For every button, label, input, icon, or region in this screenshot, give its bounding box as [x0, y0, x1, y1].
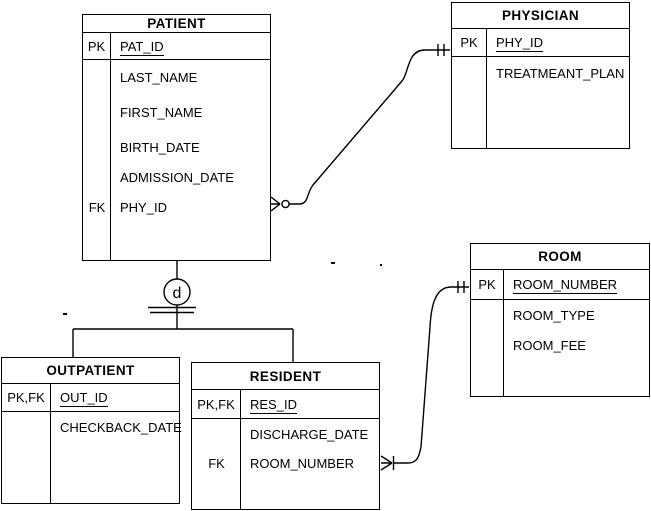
disjoint-label: d — [173, 285, 182, 302]
patient-key-column-divider — [110, 60, 111, 260]
outpatient-attr-checkback-date: CHECKBACK_DATE — [2, 418, 179, 436]
room-attr-room-type: ROOM_TYPE — [471, 306, 649, 324]
patient-pk-key-label: PK — [83, 33, 111, 59]
room-attr-room-fee: ROOM_FEE — [471, 336, 649, 354]
stray-mark — [380, 264, 382, 266]
relationship-resident-room — [381, 281, 469, 470]
patient-attr-phy-id: FK PHY_ID — [83, 198, 270, 216]
table-resident: RESIDENT PK,FK RES_ID DISCHARGE_DATE FK … — [191, 362, 380, 510]
table-patient-title: PATIENT — [83, 15, 270, 33]
table-outpatient: OUTPATIENT PK,FK OUT_ID CHECKBACK_DATE — [1, 357, 180, 504]
physician-attr-treatmeant-plan: TREATMEANT_PLAN — [452, 64, 629, 82]
table-room: ROOM PK ROOM_NUMBER ROOM_TYPE ROOM_FEE — [470, 243, 650, 397]
table-patient: PATIENT PK PAT_ID LAST_NAME FIRST_NAME B… — [82, 14, 271, 261]
resident-pk-attribute: RES_ID — [250, 397, 297, 414]
patient-attr-birth-date: BIRTH_DATE — [83, 138, 270, 156]
outpatient-pk-attribute: OUT_ID — [60, 390, 108, 407]
supertype-subtype-connector: d — [73, 261, 293, 362]
room-pk-attribute: ROOM_NUMBER — [513, 277, 617, 294]
patient-attr-first-name: FIRST_NAME — [83, 103, 270, 121]
table-physician-title: PHYSICIAN — [452, 3, 629, 29]
table-physician: PHYSICIAN PK PHY_ID TREATMEANT_PLAN — [451, 2, 630, 149]
relationship-patient-physician — [271, 44, 450, 211]
room-pk-key-label: PK — [471, 270, 504, 299]
relationship-line — [289, 50, 450, 204]
table-room-title: ROOM — [471, 244, 649, 270]
table-outpatient-title: OUTPATIENT — [2, 358, 179, 384]
physician-pk-attribute: PHY_ID — [496, 35, 543, 52]
resident-attr-discharge-date: DISCHARGE_DATE — [192, 425, 379, 443]
resident-pk-key-label: PK,FK — [192, 390, 241, 418]
er-diagram-canvas: d PATIENT PK PAT_ID LAST_NAME FIRST_NAME — [0, 0, 651, 511]
table-resident-title: RESIDENT — [192, 363, 379, 390]
crow-foot-icon — [271, 197, 280, 211]
crow-foot-icon — [381, 456, 392, 470]
zero-cardinality-icon — [282, 200, 289, 207]
patient-pk-attribute: PAT_ID — [120, 39, 164, 56]
patient-attr-last-name: LAST_NAME — [83, 68, 270, 86]
relationship-line — [393, 287, 469, 463]
outpatient-pk-key-label: PK,FK — [2, 384, 51, 411]
stray-mark — [331, 262, 335, 264]
resident-attr-room-number: FK ROOM_NUMBER — [192, 454, 379, 472]
physician-pk-key-label: PK — [452, 29, 487, 56]
stray-mark — [63, 313, 67, 315]
patient-attr-admission-date: ADMISSION_DATE — [83, 168, 270, 186]
